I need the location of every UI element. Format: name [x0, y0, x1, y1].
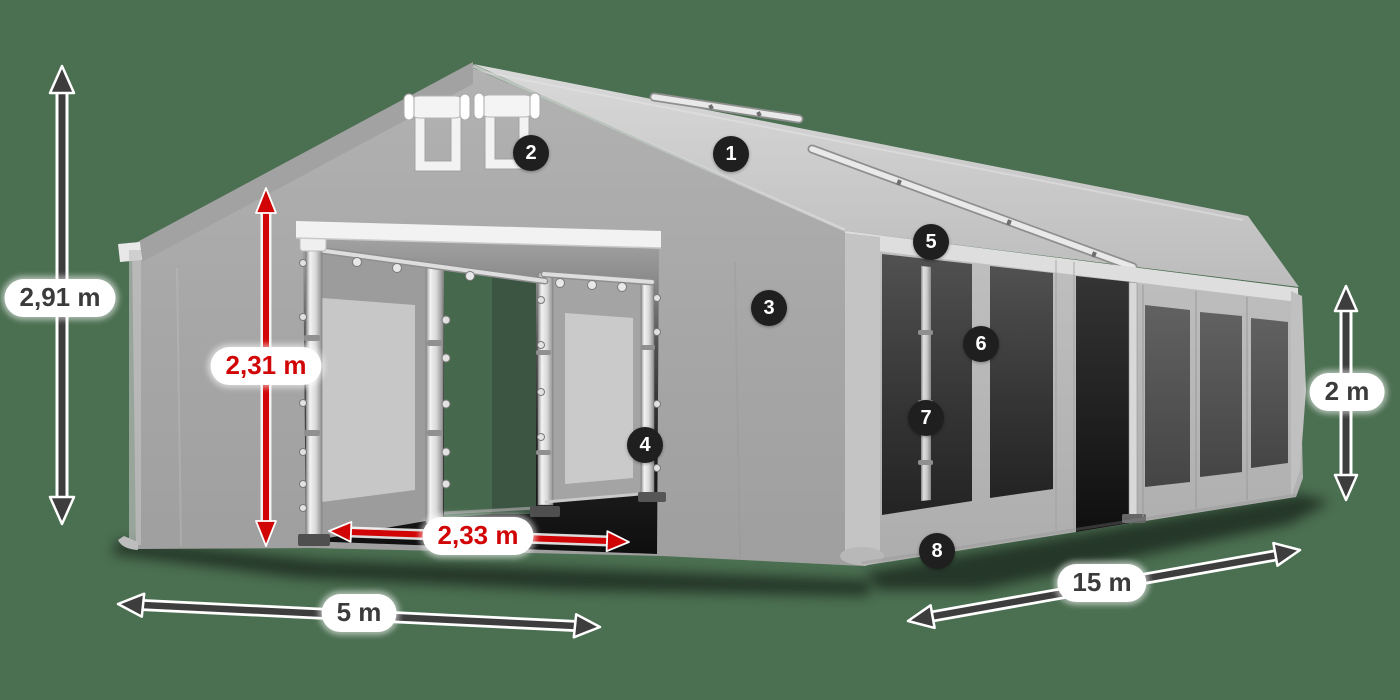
- dim-label-side-height: 2 m: [1310, 373, 1385, 411]
- dim-label-entrance-height: 2,31 m: [211, 347, 322, 385]
- part-marker-6[interactable]: 6: [963, 326, 999, 362]
- tent-dimension-diagram: 2,91 m 2,31 m 2,33 m 5 m 15 m 2 m 1 2 3 …: [0, 0, 1400, 700]
- dim-label-front-width: 5 m: [322, 594, 397, 632]
- part-marker-7[interactable]: 7: [908, 400, 944, 436]
- dim-label-side-length: 15 m: [1057, 564, 1146, 602]
- part-marker-8[interactable]: 8: [919, 533, 955, 569]
- tent-illustration: [0, 0, 1400, 700]
- part-marker-2[interactable]: 2: [513, 135, 549, 171]
- dim-label-entrance-width: 2,33 m: [423, 517, 534, 555]
- part-marker-5[interactable]: 5: [913, 224, 949, 260]
- part-marker-3[interactable]: 3: [751, 290, 787, 326]
- entrance-door-left: [316, 248, 450, 540]
- part-marker-4[interactable]: 4: [627, 427, 663, 463]
- dim-label-total-height: 2,91 m: [5, 279, 116, 317]
- entrance-door-right: [536, 272, 661, 505]
- part-marker-1[interactable]: 1: [713, 136, 749, 172]
